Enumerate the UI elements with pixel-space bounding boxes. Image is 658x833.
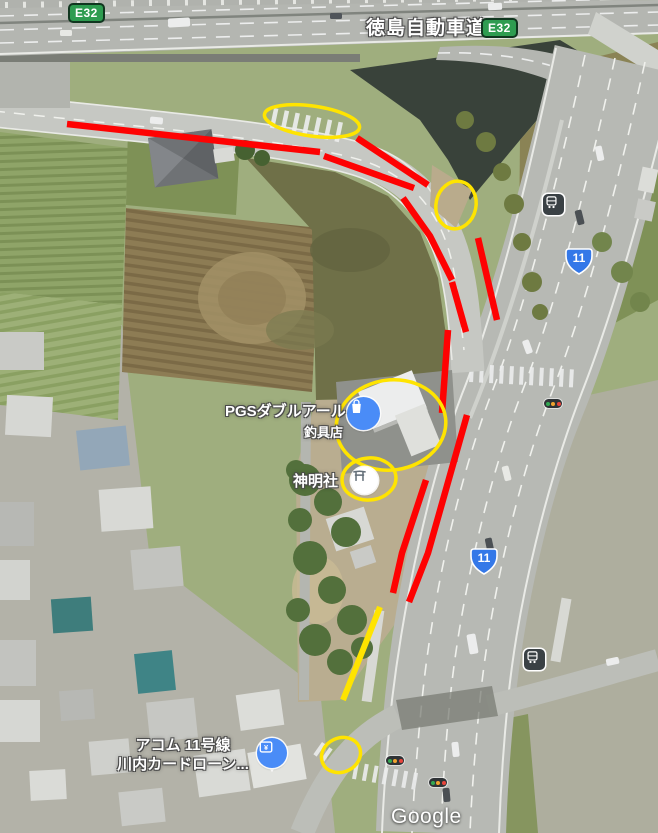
traffic-light-icon [544,399,562,408]
pgs-shop-poi-icon[interactable] [347,397,380,430]
google-watermark[interactable]: Google [391,806,462,828]
pgs-shop-label[interactable]: PGSダブルアール 釣具店 [225,400,343,441]
expressway-name-label[interactable]: 徳島自動車道 [366,13,486,40]
bus-glyph [543,194,560,211]
acom-name-line1: アコム 11号線 [110,736,256,755]
traffic-light-icon [386,756,404,765]
shrine-poi-icon[interactable] [351,467,378,494]
svg-text:¥: ¥ [264,743,269,752]
finance-pin-icon: ¥ [257,738,287,768]
bus-glyph [524,649,541,666]
map-canvas[interactable]: E32 徳島自動車道 E32 11 11 [0,0,658,833]
pgs-shop-name: PGSダブルアール [225,400,343,421]
route-11-shield-north: 11 [564,247,594,275]
shopping-bag-icon [347,397,366,416]
pgs-shop-category: 釣具店 [225,422,343,441]
route-11-shield-south: 11 [469,547,499,575]
expressway-shield-e32-west: E32 [68,3,105,23]
bus-stop-icon[interactable] [543,194,564,215]
torii-icon [351,467,368,484]
shrine-label[interactable]: 神明社 [293,470,338,491]
expressway-shield-e32-east: E32 [481,18,518,38]
acom-poi-pin[interactable]: ¥ [257,738,287,776]
route-number: 11 [469,551,499,565]
acom-label[interactable]: アコム 11号線 川内カードローン... [110,736,256,774]
traffic-light-icon [429,778,447,787]
yen-note-glyph: ¥ [257,738,275,756]
route-number: 11 [564,251,594,265]
acom-name-line2: 川内カードローン... [110,755,256,774]
bus-stop-icon[interactable] [524,649,545,670]
